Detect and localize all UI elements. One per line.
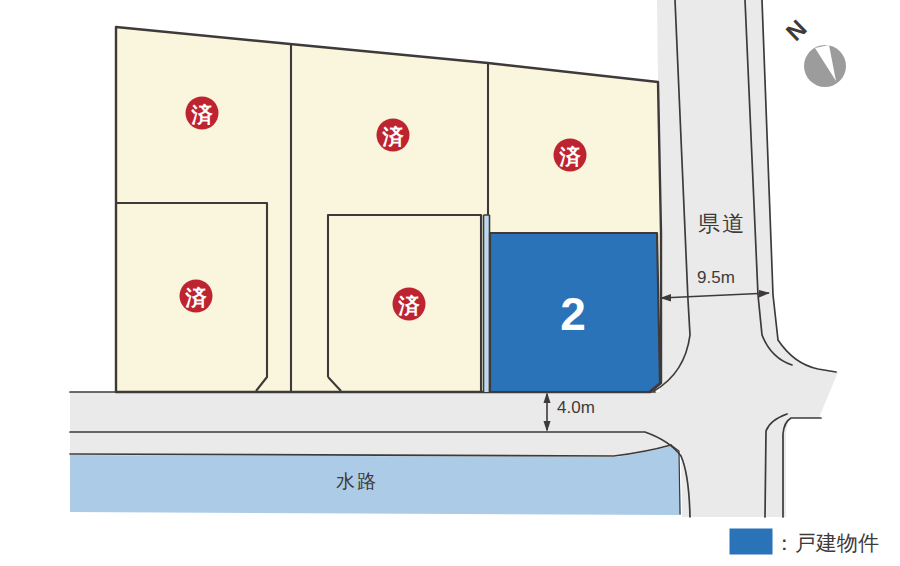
sold-badge-1: 済: [186, 97, 219, 130]
lot-2-number: 2: [560, 288, 586, 340]
sold-badge-label: 済: [398, 294, 421, 317]
legend-swatch: [730, 529, 772, 554]
legend-label: ：戸建物件: [774, 531, 879, 554]
sold-badge-4: 済: [180, 280, 213, 313]
prefectural-road-label: 県道: [698, 211, 746, 236]
compass: N: [780, 14, 846, 87]
sold-badge-5: 済: [393, 288, 426, 321]
walkway-strip-fill: [484, 215, 490, 392]
legend: ：戸建物件: [730, 529, 879, 554]
south-road-outer-right-line: [783, 418, 821, 517]
sold-badge-3: 済: [554, 139, 587, 172]
lot-2-available: 2: [490, 233, 660, 392]
dim-9-5m-label: 9.5m: [697, 268, 735, 287]
compass-north-label: N: [780, 14, 811, 45]
waterway-label: 水路: [336, 471, 378, 492]
site-plan-svg: 2 済 済 済 済 済: [0, 0, 900, 566]
sold-badge-label: 済: [559, 145, 582, 168]
walkway-strip: [484, 215, 490, 392]
sold-badge-label: 済: [185, 286, 208, 309]
sold-badge-2: 済: [377, 119, 410, 152]
sold-badge-label: 済: [382, 125, 405, 148]
site-plan: 2 済 済 済 済 済: [0, 0, 900, 566]
sold-badge-label: 済: [191, 103, 214, 126]
dim-4-0m-label: 4.0m: [557, 398, 595, 417]
